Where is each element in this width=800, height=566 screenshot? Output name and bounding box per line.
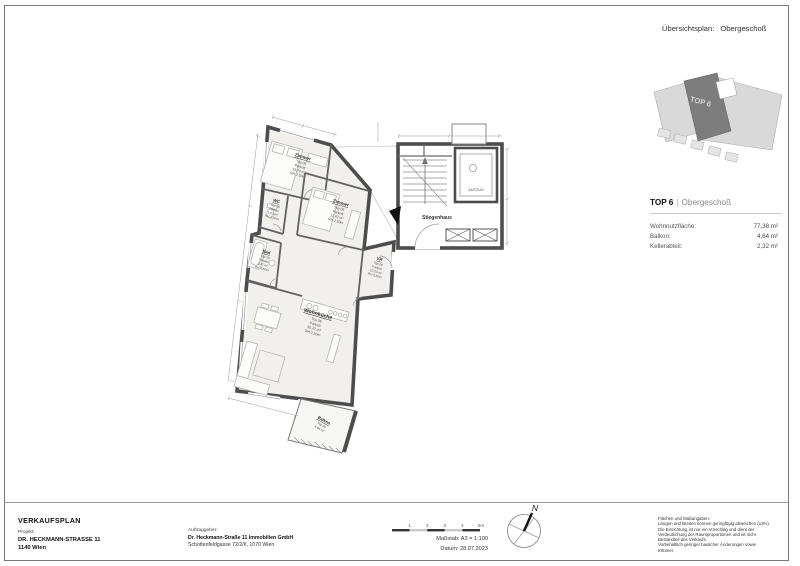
scale-tick: 5m: [478, 523, 485, 528]
overview-title-value: Obergeschoß: [720, 24, 766, 33]
unit-row-value: 77,38 m²: [754, 223, 778, 230]
scale-tick: 1: [408, 523, 411, 528]
project-label: Projekt:: [18, 530, 35, 535]
client-label: Auftraggeber:: [188, 528, 218, 533]
compass: N: [508, 503, 541, 548]
unit-row-value: 4,64 m²: [757, 233, 778, 240]
overview-title-label: Übersichtsplan:: [662, 24, 714, 33]
unit-row-label: Wohnnutzfläche:: [650, 223, 696, 230]
unit-floor: Obergeschoß: [682, 198, 732, 207]
stairwell: AUFZUG Stiegenhaus: [398, 124, 502, 248]
stairwell-label: Stiegenhaus: [422, 215, 452, 221]
disclaimer: Flächen und Maßangaben: Längen und Breit…: [658, 516, 790, 553]
overview-title: Übersichtsplan:Obergeschoß: [662, 24, 766, 33]
client-line1: Dr. Heckmann-Straße 11 Immobilien GmbH: [188, 535, 293, 541]
compass-north-label: N: [532, 503, 539, 513]
unit-row-wohnnutzflaeche: Wohnnutzfläche: 77,38 m²: [650, 223, 778, 230]
unit-row-label: Kellerabteil:: [650, 243, 682, 250]
unit-row-label: Balkon:: [650, 233, 671, 240]
scale-tick: 3: [444, 523, 447, 528]
project-line1: DR. HECKMANN-STRASSE 11: [18, 537, 100, 543]
scale-bar: 1 2 3 4 5m: [392, 523, 484, 531]
disclaimer-line: Irrtümer.: [658, 548, 790, 553]
overview-minimap: TOP 6: [654, 73, 782, 162]
unit-heading-rule: [650, 213, 782, 214]
sheet-title: VERKAUFSPLAN: [18, 516, 81, 525]
unit-row-kellerabteil: Kellerabteil: 2,32 m²: [650, 243, 778, 250]
client-line2: Schottenfeldgasse 72/2/II, 1070 Wien: [188, 542, 274, 548]
unit-name: TOP 6: [650, 198, 673, 207]
unit-row-value: 2,32 m²: [757, 243, 778, 250]
floor-plan-svg: AUFZUG Stiegenhaus Zimmer: [0, 0, 800, 566]
elevator: AUFZUG: [455, 148, 497, 202]
unit-row-balkon: Balkon: 4,64 m²: [650, 233, 778, 240]
scale-label: Maßstab: A3 = 1:100: [368, 536, 488, 542]
unit-heading-separator: |: [676, 198, 678, 207]
date-label: Datum: 28.07.2023: [368, 546, 488, 552]
unit-heading: TOP 6|Obergeschoß: [650, 198, 731, 207]
verkaufsplan-sheet: { "overview": { "title_label": "Übersich…: [0, 0, 800, 566]
scale-tick: 2: [426, 523, 429, 528]
scale-tick: 4: [461, 523, 464, 528]
elevator-label: AUFZUG: [468, 188, 484, 192]
project-line2: 1140 Wien: [18, 545, 46, 551]
